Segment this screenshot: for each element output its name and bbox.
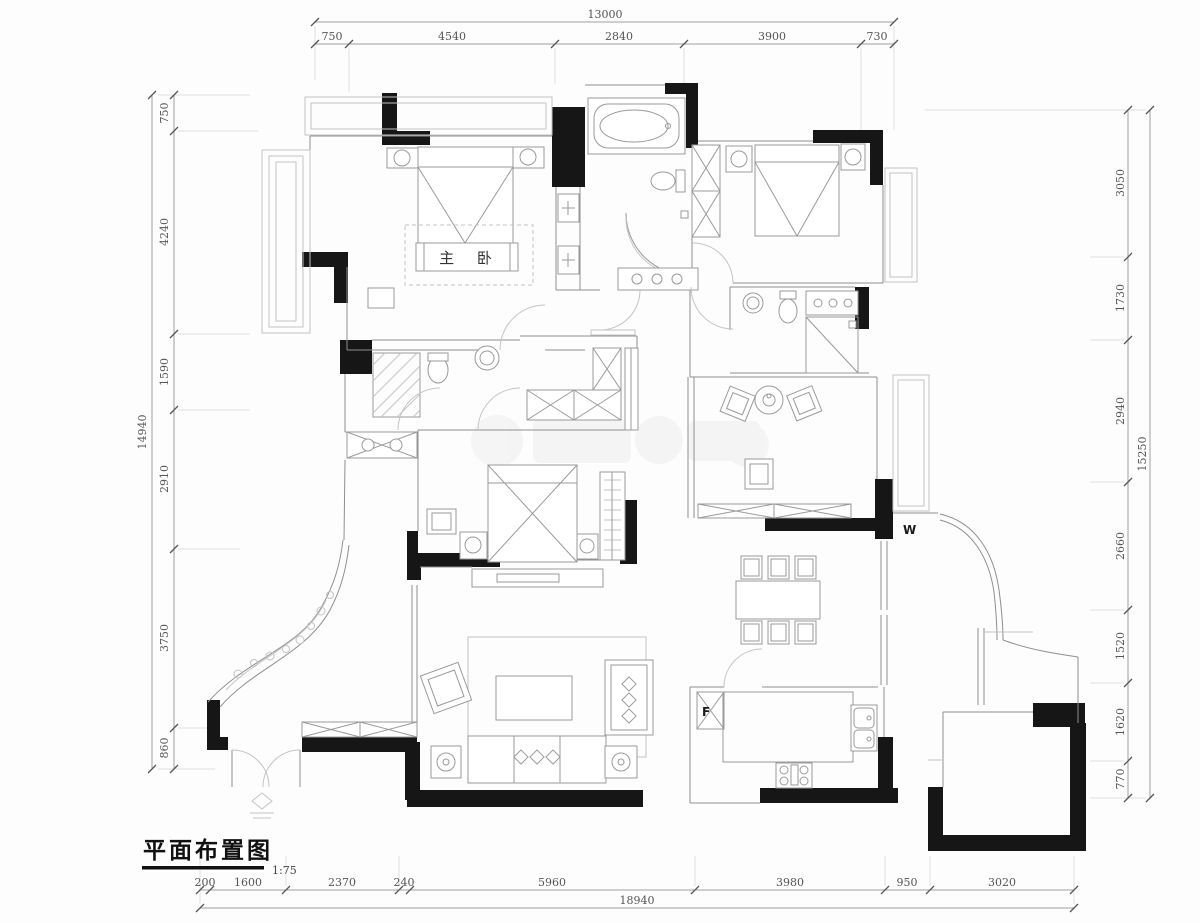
wall-segment: [407, 560, 421, 580]
door-swing: [691, 287, 733, 329]
coffee-table: [496, 676, 572, 720]
title-block: 平面布置图 1:75: [142, 837, 297, 877]
ensuite-bathroom: [691, 287, 858, 373]
wall-segment: [382, 131, 430, 145]
wall-segment: [334, 267, 348, 303]
wall-segment: [302, 737, 417, 752]
shower-head: [681, 211, 688, 218]
dimension-chain-right: 15250 3050 1730 2940 2660 1520 1620 770: [925, 106, 1154, 802]
bed: [755, 145, 839, 236]
dim-left-seg: 3750: [158, 624, 171, 652]
title-underline: [142, 866, 264, 870]
dim-left-total: 14940: [136, 415, 149, 450]
armchair: [420, 662, 471, 713]
entry: [232, 722, 417, 818]
dim-right-seg: 1520: [1114, 632, 1127, 660]
round-basin: [743, 293, 763, 313]
floor-plan-drawing: 13000 750 4540 2840 3900 730 14940 750 4…: [0, 0, 1200, 923]
door-swing: [600, 290, 640, 330]
nightstand: [387, 148, 418, 168]
balcony-curved: [208, 460, 349, 707]
entry-marker: [252, 793, 272, 809]
dim-left-seg: 860: [158, 738, 171, 759]
bedroom-2: [692, 144, 865, 283]
round-table: [755, 386, 783, 414]
wall-segment: [760, 788, 898, 803]
dim-bottom-seg: 3020: [988, 876, 1016, 889]
walk-in-closet: [527, 348, 638, 430]
wall-segment: [875, 479, 893, 539]
dim-bottom-seg: 1600: [234, 876, 262, 889]
dim-top-seg: 4540: [438, 30, 466, 43]
dim-bottom-seg: 2370: [328, 876, 356, 889]
dim-right-seg: 770: [1114, 769, 1127, 790]
side-table: [605, 746, 637, 778]
dim-bottom-seg: 3980: [776, 876, 804, 889]
toilet: [651, 172, 675, 190]
round-basin: [475, 346, 499, 370]
dim-bottom-seg: 5960: [538, 876, 566, 889]
dim-bottom-seg: 240: [394, 876, 415, 889]
side-table: [431, 746, 461, 778]
dim-top-seg: 730: [867, 30, 888, 43]
porch: [928, 632, 1033, 760]
nightstand: [460, 532, 487, 559]
wall-segment: [1070, 723, 1086, 763]
bed-end-bench: [510, 243, 518, 271]
wall-segment: [878, 737, 893, 790]
wall-segment: [870, 141, 883, 185]
dining-area: W: [736, 523, 916, 644]
tv: [497, 574, 559, 582]
dim-top-seg: 750: [322, 30, 343, 43]
dining-table: [736, 581, 820, 619]
wall-segment: [207, 737, 228, 750]
room-label-master-bedroom: 主 卧: [439, 249, 501, 267]
wall-segment: [340, 340, 372, 374]
door-swing: [693, 243, 733, 283]
dim-top-seg: 2840: [605, 30, 633, 43]
dim-left-seg: 750: [158, 103, 171, 124]
watermark: [471, 415, 769, 467]
wall-segment: [1070, 763, 1086, 851]
dim-left-seg: 1590: [158, 358, 171, 386]
shower-screen: [626, 213, 688, 275]
dim-right-seg: 2940: [1114, 397, 1127, 425]
wall-segment: [928, 835, 1086, 851]
sofa: [468, 736, 606, 783]
master-bed: [418, 147, 513, 243]
master-bedroom: 主 卧: [368, 147, 545, 350]
dim-right-seg: 2660: [1114, 532, 1127, 560]
vanity-counter: [618, 268, 698, 290]
drawing-title: 平面布置图: [143, 837, 273, 864]
living-room: [420, 569, 653, 783]
dimension-chain-bottom: 200 1600 2370 240 5960 3980 950 3020 189…: [195, 856, 1079, 912]
wall-segment: [765, 518, 877, 531]
washer-label: W: [903, 523, 916, 537]
dim-right-seg: 3050: [1114, 169, 1127, 197]
door-swing: [500, 305, 545, 350]
nightstand: [726, 146, 752, 172]
bed-end-bench: [416, 243, 424, 271]
fridge-label: F: [702, 705, 710, 719]
drawing-scale: 1:75: [272, 864, 297, 877]
dim-right-total: 15250: [1136, 437, 1149, 472]
dim-top-seg: 3900: [758, 30, 786, 43]
dim-bottom-seg: 950: [897, 876, 918, 889]
wall-segment: [686, 92, 698, 148]
shower-head: [849, 321, 856, 328]
lounge-chair: [787, 386, 822, 421]
floor-plan-sheet: 13000 750 4540 2840 3900 730 14940 750 4…: [0, 0, 1200, 923]
dim-top-total: 13000: [588, 8, 623, 21]
wall-segment: [407, 790, 643, 807]
dim-left-seg: 4240: [158, 218, 171, 246]
wall-segment: [552, 107, 585, 187]
toilet: [780, 291, 796, 299]
dim-bottom-total: 18940: [620, 894, 655, 907]
lounge-chair: [720, 386, 755, 421]
kitchen: F: [697, 649, 877, 788]
door-swing: [724, 649, 762, 687]
dim-right-seg: 1730: [1114, 284, 1127, 312]
stool: [368, 288, 394, 308]
dim-left-seg: 2910: [158, 465, 171, 493]
wall-segment: [302, 252, 348, 267]
kitchen-counter: [723, 692, 853, 762]
dim-bottom-seg: 200: [195, 876, 216, 889]
dim-right-seg: 1620: [1114, 708, 1127, 736]
